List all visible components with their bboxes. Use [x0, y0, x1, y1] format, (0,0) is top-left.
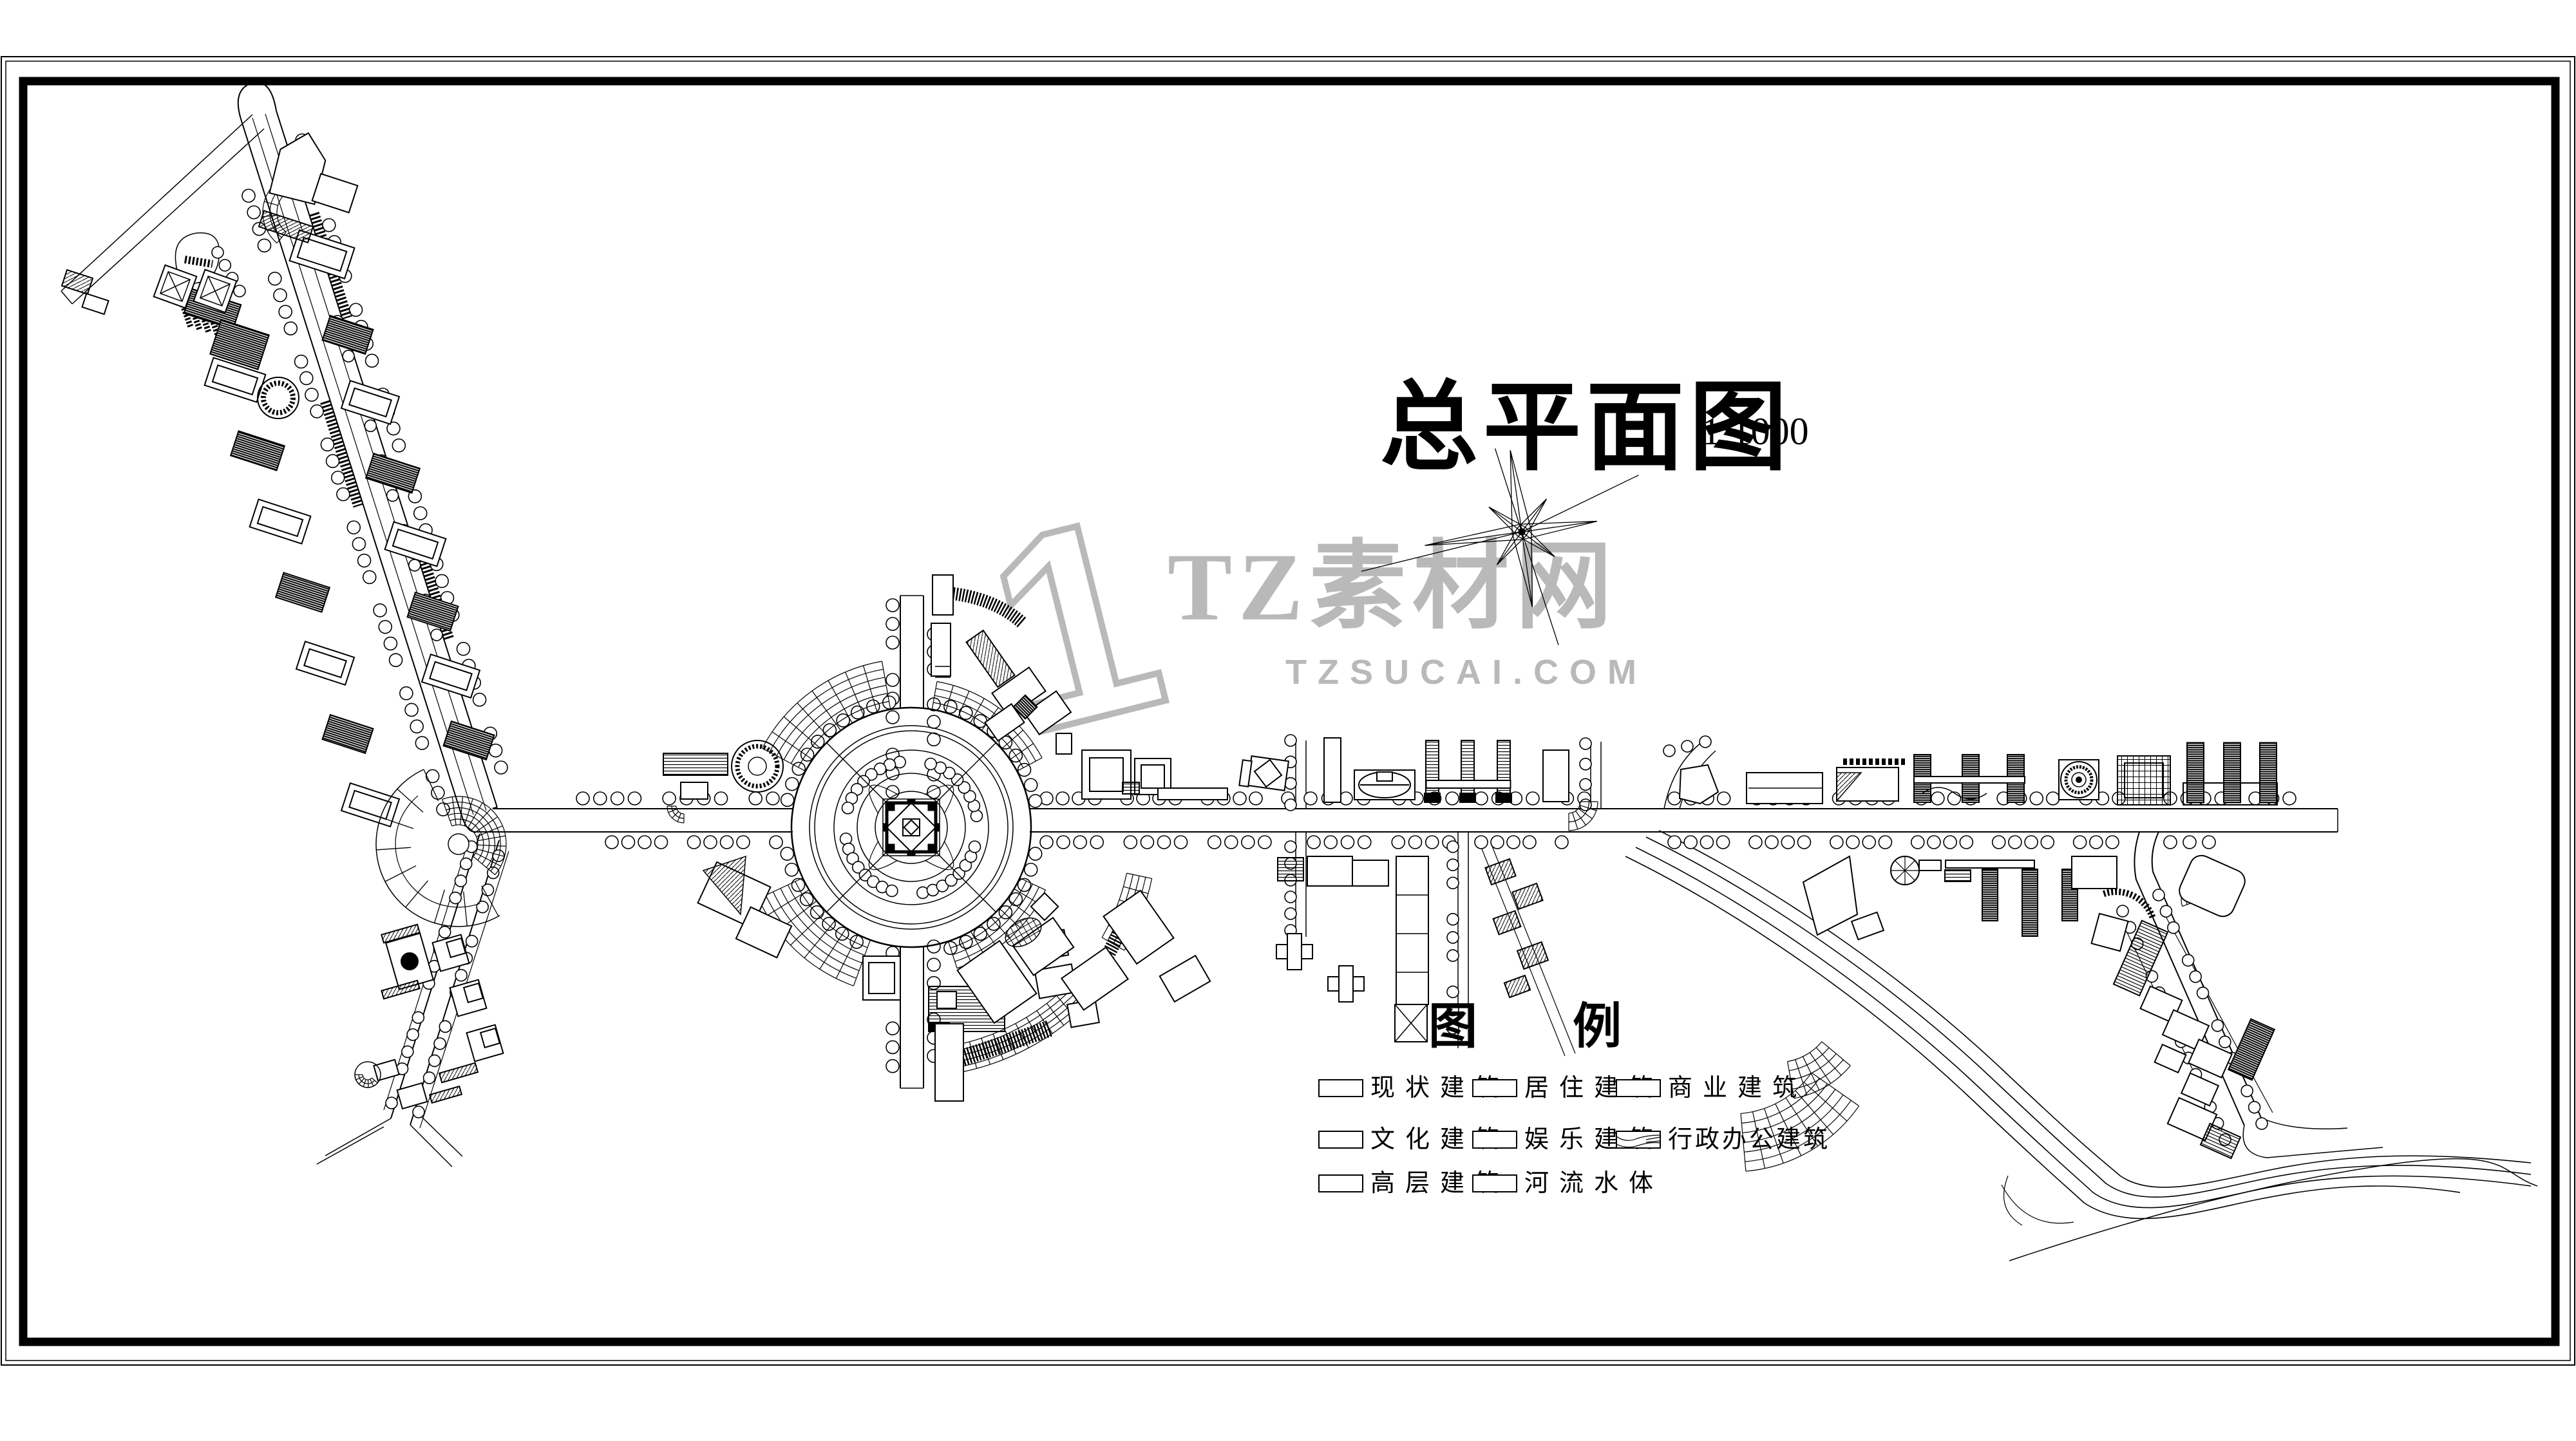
legend-swatch [1319, 1080, 1363, 1097]
legend-item-label: 商业建筑 [1668, 1075, 1807, 1102]
legend-swatch [1319, 1175, 1363, 1192]
legend-item-label: 河流水体 [1524, 1170, 1663, 1197]
legend-title: 图例 [1428, 1000, 1717, 1054]
site-plan-drawing: 1 TZ素材网 TZSUCAI.COM 1:1000 总平面图 图例 现状建筑居… [0, 0, 2576, 1441]
title-block: 1:1000 总平面图 [1380, 374, 1809, 482]
legend-swatch [1616, 1080, 1660, 1097]
watermark-domain-text: TZSUCAI.COM [1285, 653, 1647, 692]
legend-swatch [1473, 1175, 1517, 1192]
legend-swatch [1473, 1131, 1517, 1148]
legend-swatch [1319, 1131, 1363, 1148]
drawing-title: 总平面图 [1380, 374, 1792, 482]
legend-item-label: 行政办公建筑 [1668, 1126, 1830, 1153]
watermark-brand-text: TZ素材网 [1168, 534, 1618, 641]
paper-background [0, 0, 2576, 1441]
legend-swatch [1473, 1080, 1517, 1097]
cad-sheet: 1 TZ素材网 TZSUCAI.COM 1:1000 总平面图 图例 现状建筑居… [0, 0, 2576, 1441]
